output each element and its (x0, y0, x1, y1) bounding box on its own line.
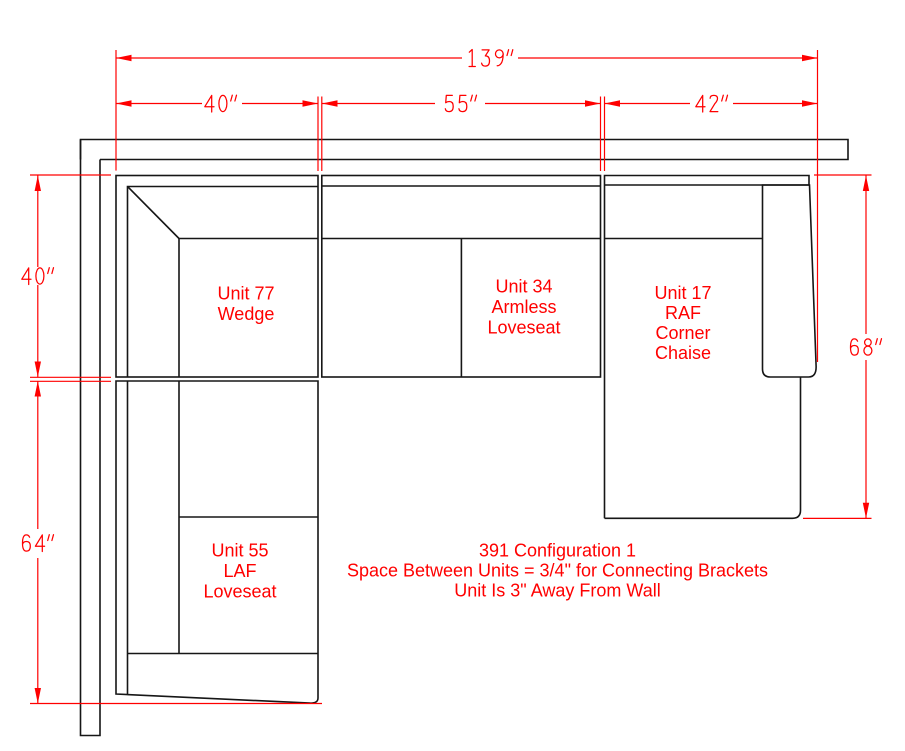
svg-text:Unit 77Wedge: Unit 77Wedge (217, 284, 274, 325)
svg-text:Unit 34ArmlessLoveseat: Unit 34ArmlessLoveseat (487, 277, 560, 338)
svg-text:Unit 17RAFCornerChaise: Unit 17RAFCornerChaise (654, 283, 711, 363)
